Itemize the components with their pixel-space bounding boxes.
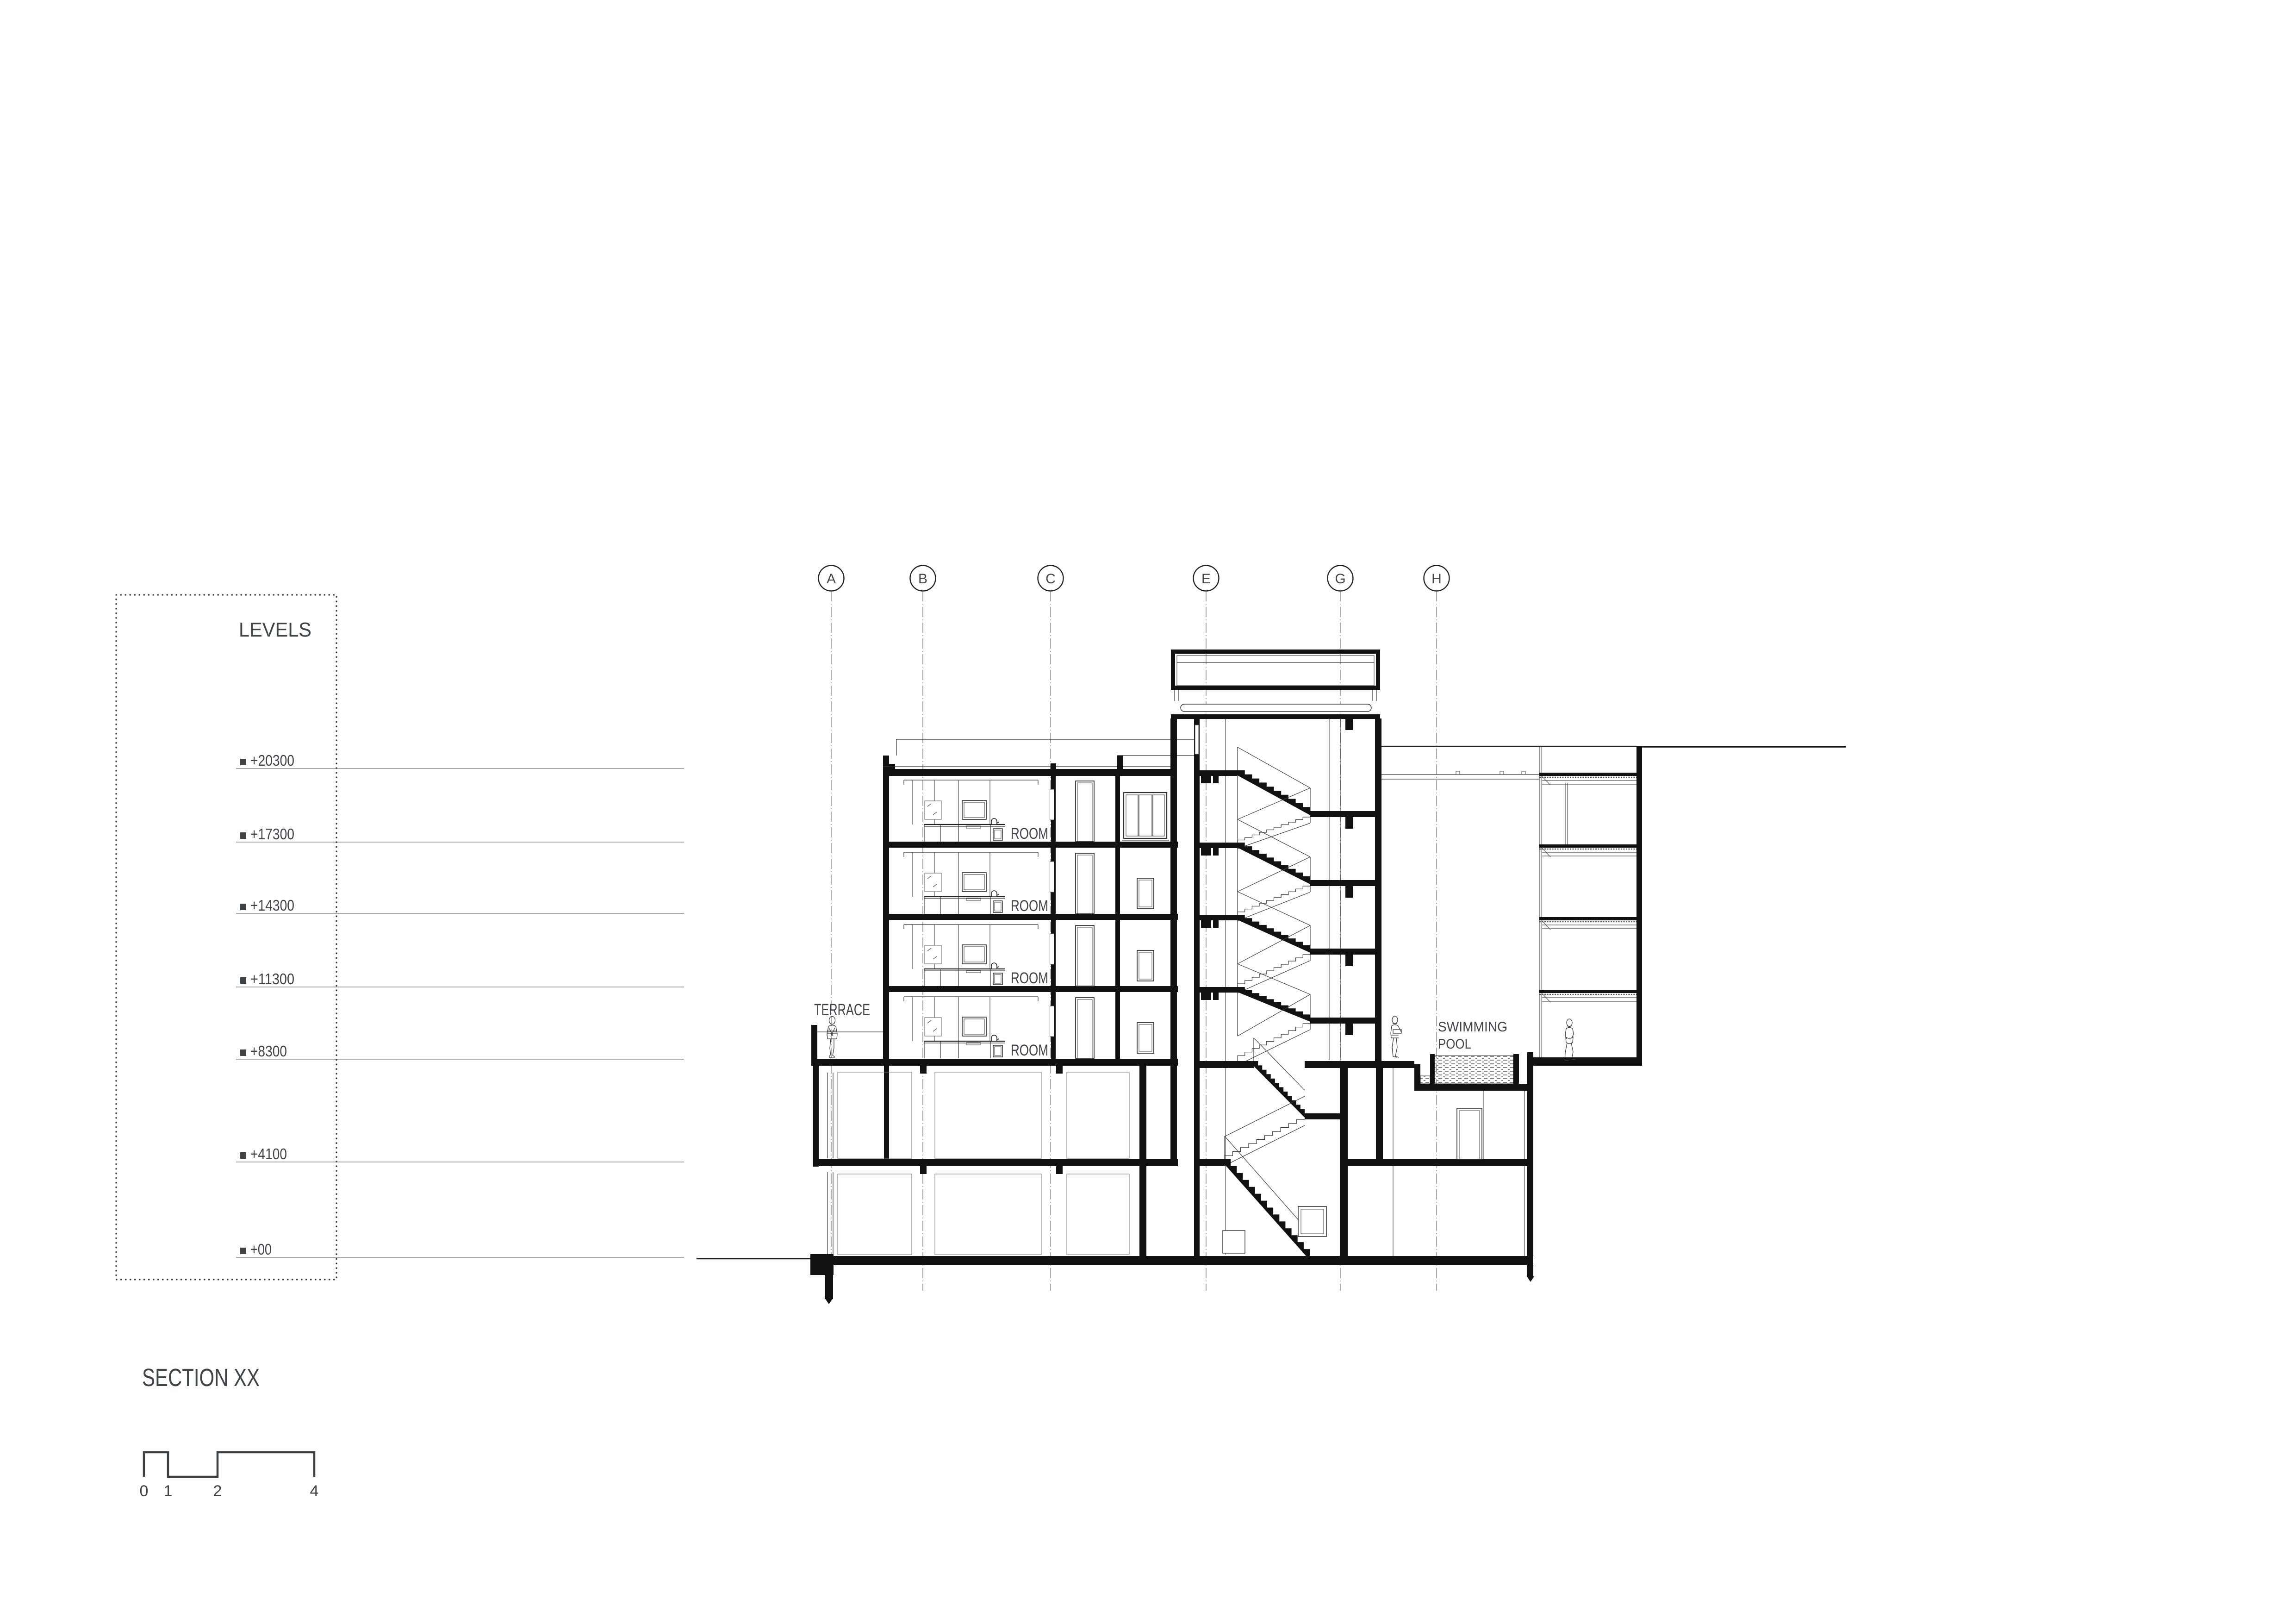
svg-text:E: E <box>1201 571 1211 587</box>
svg-text:LEVELS: LEVELS <box>239 618 311 641</box>
svg-text:4: 4 <box>310 1482 319 1500</box>
svg-text:+00: +00 <box>250 1241 272 1258</box>
svg-text:ROOM: ROOM <box>1011 825 1048 843</box>
svg-text:+20300: +20300 <box>250 752 294 769</box>
svg-text:ROOM: ROOM <box>1011 897 1048 915</box>
svg-text:SECTION XX: SECTION XX <box>142 1364 260 1392</box>
svg-text:C: C <box>1045 571 1056 587</box>
svg-text:A: A <box>827 571 836 587</box>
svg-text:+11300: +11300 <box>250 970 294 987</box>
svg-text:G: G <box>1335 571 1345 587</box>
svg-text:+14300: +14300 <box>250 897 294 914</box>
svg-text:ROOM: ROOM <box>1011 969 1048 987</box>
svg-text:+8300: +8300 <box>250 1043 287 1060</box>
svg-text:0: 0 <box>140 1482 149 1500</box>
svg-text:SWIMMING: SWIMMING <box>1438 1019 1507 1035</box>
svg-text:+4100: +4100 <box>250 1145 287 1162</box>
svg-text:TERRACE: TERRACE <box>814 1001 870 1019</box>
svg-text:ROOM: ROOM <box>1011 1042 1048 1059</box>
svg-text:1: 1 <box>164 1482 173 1500</box>
svg-text:+17300: +17300 <box>250 825 294 843</box>
svg-text:B: B <box>918 571 927 587</box>
svg-text:POOL: POOL <box>1438 1037 1471 1052</box>
svg-text:H: H <box>1431 571 1442 587</box>
svg-text:2: 2 <box>213 1482 222 1500</box>
